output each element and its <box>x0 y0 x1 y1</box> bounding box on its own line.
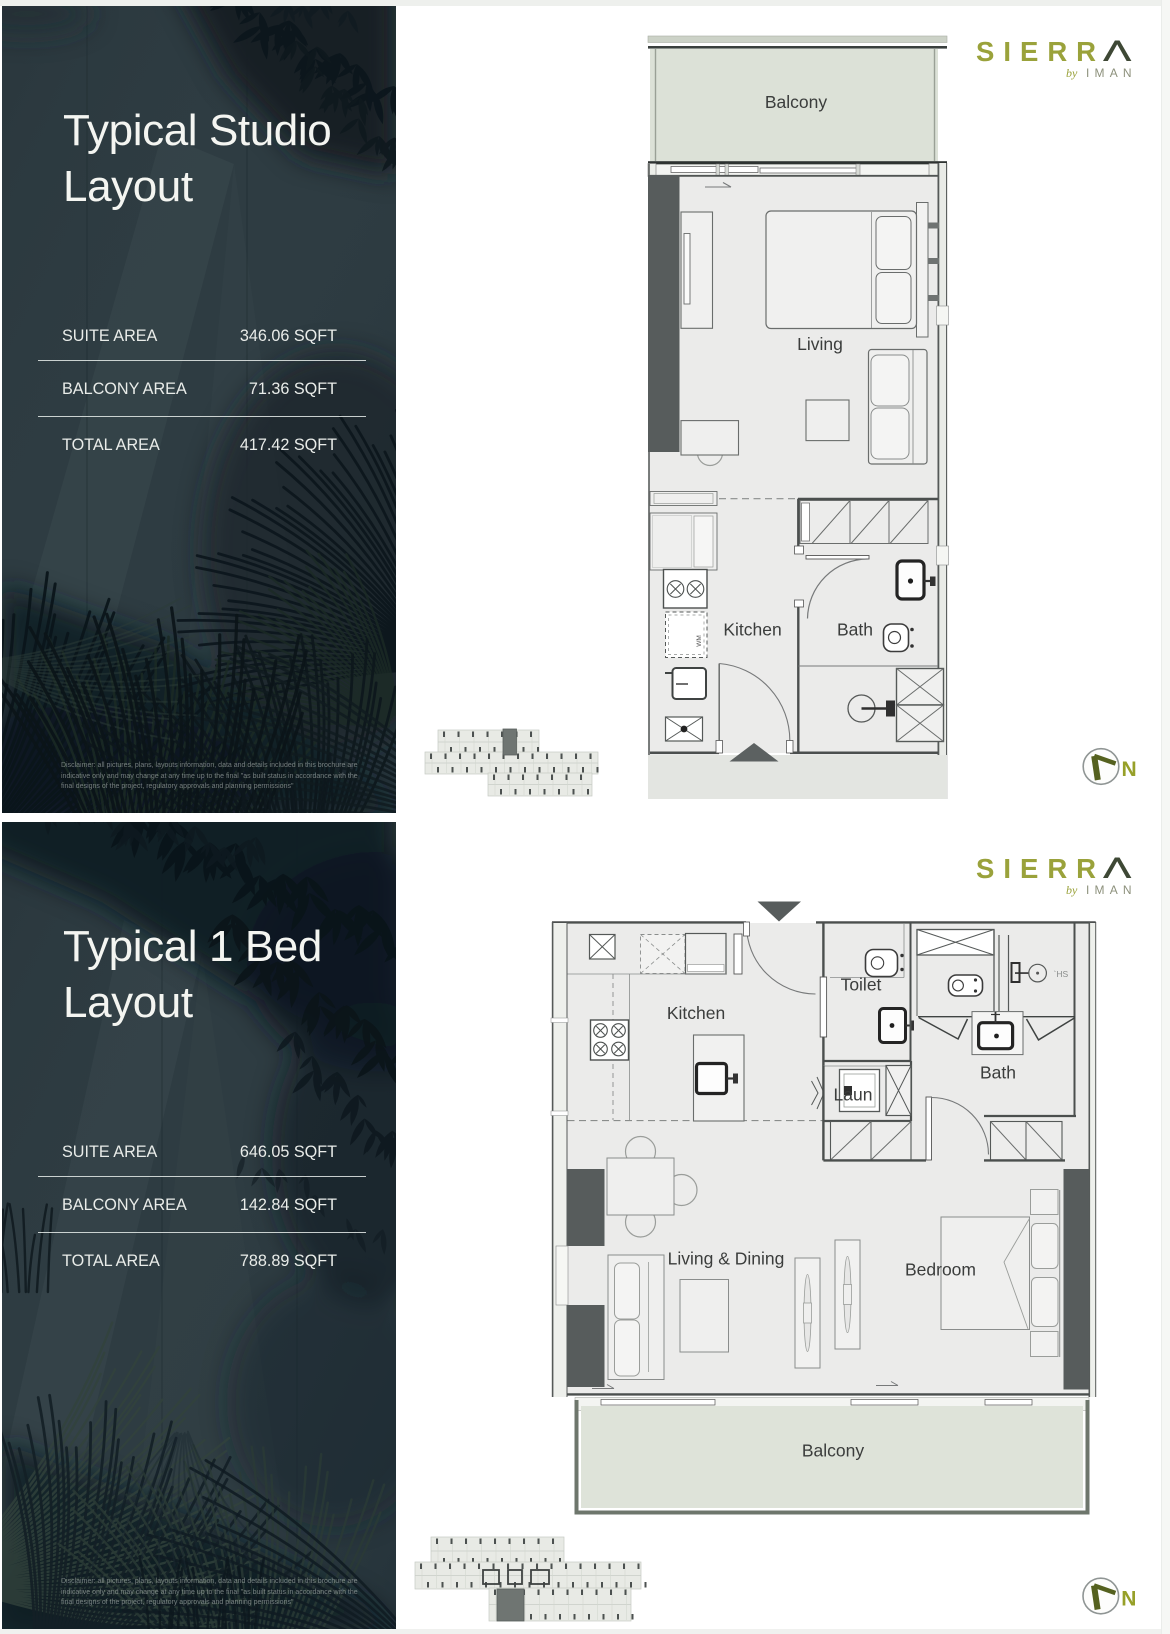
svg-text:Bath: Bath <box>837 620 873 640</box>
svg-text:Living & Dining: Living & Dining <box>668 1248 785 1268</box>
svg-text:`HS: `HS <box>1054 969 1069 979</box>
svg-text:Kitchen: Kitchen <box>723 620 781 640</box>
svg-text:IMAN: IMAN <box>1086 66 1137 80</box>
svg-text:SIERR: SIERR <box>976 853 1105 884</box>
svg-text:SIERR: SIERR <box>976 36 1105 67</box>
svg-text:Kitchen: Kitchen <box>667 1003 725 1023</box>
svg-text:Toilet: Toilet <box>841 975 882 995</box>
svg-text:Living: Living <box>797 334 843 354</box>
svg-text:by: by <box>1066 66 1078 80</box>
svg-text:Balcony: Balcony <box>802 1441 865 1461</box>
svg-text:Balcony: Balcony <box>765 92 828 112</box>
svg-text:by: by <box>1066 883 1078 897</box>
svg-text:WM: WM <box>696 635 703 647</box>
svg-text:Bath: Bath <box>980 1063 1016 1083</box>
svg-text:N: N <box>1121 1588 1136 1611</box>
svg-text:IMAN: IMAN <box>1086 883 1137 897</box>
svg-text:Laun: Laun <box>834 1085 873 1105</box>
svg-text:N: N <box>1122 758 1137 781</box>
svg-text:Bedroom: Bedroom <box>905 1260 976 1280</box>
